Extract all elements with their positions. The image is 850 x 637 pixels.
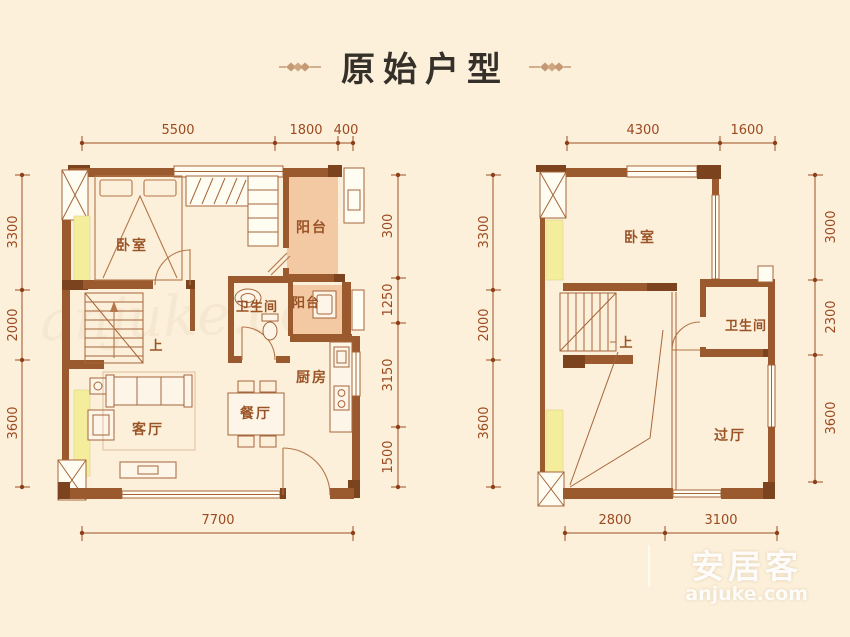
floorplan-right: 4300 1600 3300 2000 3600 3000 2300 3600 [450, 110, 850, 565]
dim-label: 4300 [626, 123, 659, 138]
dim-label: 5500 [161, 123, 194, 138]
dim-label: 3300 [6, 215, 21, 248]
floorplan-left: 5500 1800 400 3300 2000 3600 300 1250 31… [0, 110, 440, 565]
title-bar: 原始户型 [0, 42, 850, 91]
right-dims-left: 3300 2000 3600 [477, 173, 501, 489]
room-label-balcony: 阳台 [296, 219, 328, 236]
brand-logo-en: anjuke.com [685, 585, 808, 605]
left-dims-right: 300 1250 3150 1500 [381, 173, 406, 489]
dim-label: 3000 [824, 210, 839, 243]
dim-label: 3600 [477, 406, 492, 439]
page-title: 原始户型 [341, 42, 509, 91]
title-ornament-left [279, 60, 321, 74]
right-dims-right: 3000 2300 3600 [808, 173, 839, 484]
right-plan-labels: 卧室 卫生间 过厅 上 [619, 229, 767, 444]
right-dims-bottom: 2800 3100 [563, 513, 779, 541]
dim-label: 3300 [477, 215, 492, 248]
dim-label: 2000 [6, 308, 21, 341]
brand-logo: 安居客 anjuke.com [685, 550, 808, 605]
dim-label: 400 [334, 123, 359, 138]
dim-label: 3600 [824, 401, 839, 434]
right-plan-stairs [560, 293, 616, 351]
dim-label: 1250 [381, 283, 396, 316]
dim-label: 1500 [381, 440, 396, 473]
dim-label: 2300 [824, 300, 839, 333]
left-dims-bottom: 7700 [80, 513, 355, 541]
dim-label: 1600 [730, 123, 763, 138]
logo-divider [648, 545, 650, 587]
floorplan-page: 原始户型 anjuke.com 5500 1800 400 [0, 0, 850, 637]
room-label-bathroom: 卫生间 [725, 318, 767, 334]
dim-label: 3600 [6, 406, 21, 439]
room-label-dining: 餐厅 [239, 405, 272, 422]
stairs-up-label: 上 [619, 336, 632, 351]
right-plan-walls [536, 165, 775, 506]
room-label-hall: 过厅 [714, 427, 746, 444]
dim-label: 7700 [201, 513, 234, 528]
brand-logo-cn: 安居客 [685, 550, 808, 585]
title-ornament-right [529, 60, 571, 74]
dim-label: 300 [381, 214, 396, 239]
left-dims-left: 3300 2000 3600 [6, 173, 30, 489]
dim-label: 1800 [289, 123, 322, 138]
room-label-bedroom: 卧室 [116, 237, 148, 254]
room-label-kitchen: 厨房 [296, 369, 328, 386]
room-label-bedroom: 卧室 [624, 229, 656, 246]
right-dims-top: 4300 1600 [565, 123, 777, 151]
dim-label: 2800 [598, 513, 631, 528]
left-dims-top: 5500 1800 400 [80, 123, 359, 151]
room-label-bathroom: 卫生间 [236, 299, 278, 315]
stairs [85, 293, 143, 363]
dim-label: 2000 [477, 308, 492, 341]
room-label-living: 客厅 [131, 421, 164, 438]
dim-label: 3150 [381, 358, 396, 391]
stairs-up-label: 上 [149, 339, 162, 354]
room-label-balcony-small: 阳台 [292, 295, 320, 311]
dim-label: 3100 [704, 513, 737, 528]
